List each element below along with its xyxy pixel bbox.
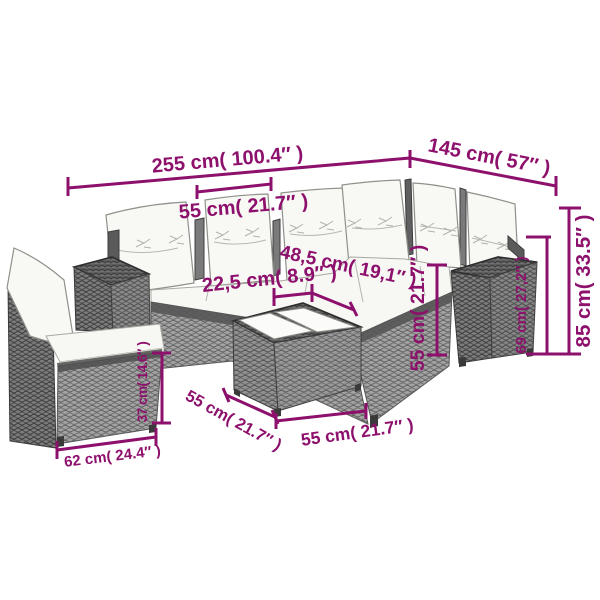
svg-text:85 cm( 33.5″ ): 85 cm( 33.5″ )	[572, 215, 595, 348]
svg-text:55 cm( 21.7″ ): 55 cm( 21.7″ )	[407, 245, 429, 371]
svg-text:37 cm( 14.6″ ): 37 cm( 14.6″ )	[135, 342, 150, 423]
svg-text:69 cm( 27,2″ ): 69 cm( 27,2″ )	[513, 256, 530, 353]
